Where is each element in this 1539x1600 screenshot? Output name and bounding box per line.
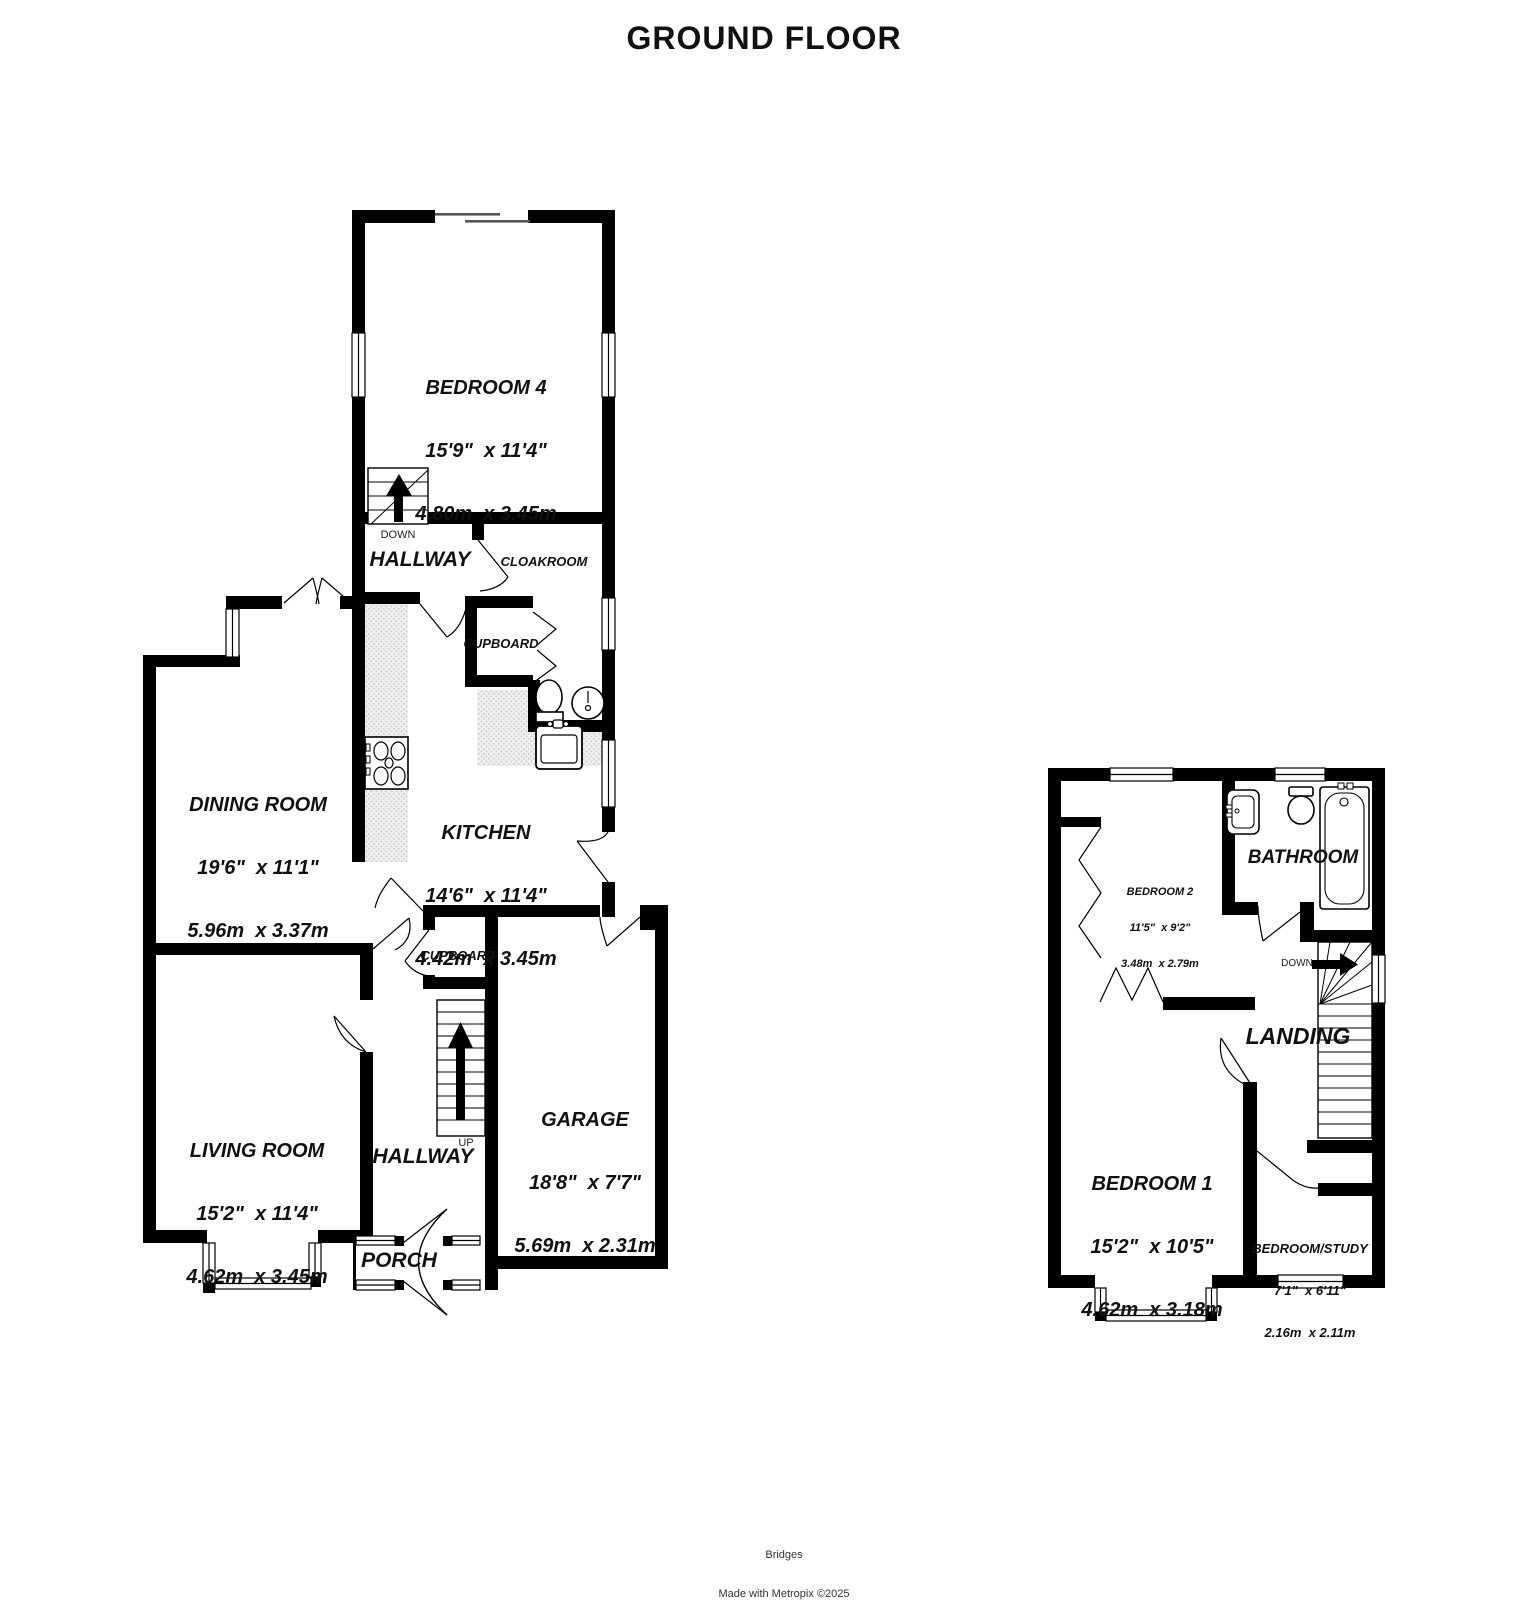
room-name: BEDROOM 2 (1121, 886, 1199, 898)
room-name: BEDROOM 4 (415, 378, 556, 399)
bath-icon (1320, 783, 1369, 909)
room-dims-metric: 4.80m x 3.45m (415, 504, 556, 525)
room-dims-metric: 4.62m x 3.45m (186, 1267, 327, 1288)
room-name: KITCHEN (415, 823, 556, 844)
bathroom-sink-icon (1226, 790, 1259, 834)
room-name: BEDROOM 1 (1081, 1174, 1222, 1195)
footer-brand: Bridges (718, 1549, 849, 1562)
stairs-down-first-label: DOWN (1281, 958, 1313, 969)
room-dims-imperial: 15'9" x 11'4" (415, 441, 556, 462)
room-label-cupboard-lower: CUPBOARD (420, 949, 495, 963)
room-label-landing: LANDING (1246, 1024, 1351, 1048)
room-label-living: LIVING ROOM 15'2" x 11'4" 4.62m x 3.45m (186, 1099, 327, 1330)
room-label-kitchen: KITCHEN 14'6" x 11'4" 4.42m x 3.45m (415, 781, 556, 1012)
bathroom-toilet-icon (1288, 787, 1314, 824)
sliding-door-icon (435, 213, 530, 223)
room-dims-metric: 3.48m x 2.79m (1121, 958, 1199, 970)
floorplan-canvas: GROUND FLOOR (0, 0, 1539, 1600)
room-label-bathroom: BATHROOM (1248, 848, 1358, 868)
room-dims-imperial: 19'6" x 11'1" (187, 858, 328, 879)
room-dims-imperial: 7'1" x 6'11" (1252, 1284, 1368, 1298)
room-name: LIVING ROOM (186, 1141, 327, 1162)
room-label-hallway-upper: HALLWAY (369, 549, 470, 571)
room-dims-imperial: 14'6" x 11'4" (415, 886, 556, 907)
room-dims-metric: 5.96m x 3.37m (187, 921, 328, 942)
room-label-dining: DINING ROOM 19'6" x 11'1" 5.96m x 3.37m (187, 753, 328, 984)
room-dims-metric: 4.62m x 3.18m (1081, 1300, 1222, 1321)
room-label-bedroom4: BEDROOM 4 15'9" x 11'4" 4.80m x 3.45m (415, 336, 556, 567)
room-label-bedroom2: BEDROOM 2 11'5" x 9'2" 3.48m x 2.79m (1121, 862, 1199, 994)
room-name: GARAGE (514, 1110, 655, 1131)
room-dims-imperial: 15'2" x 10'5" (1081, 1237, 1222, 1258)
room-dims-imperial: 11'5" x 9'2" (1121, 922, 1199, 934)
room-dims-metric: 5.69m x 2.31m (514, 1236, 655, 1257)
hob-icon (365, 737, 408, 789)
kitchen-sink-icon (536, 720, 582, 769)
room-name: DINING ROOM (187, 795, 328, 816)
room-label-hallway-lower: HALLWAY (372, 1146, 473, 1168)
toilet-icon (536, 680, 563, 722)
room-dims-imperial: 18'8" x 7'7" (514, 1173, 655, 1194)
room-label-cloakroom: CLOAKROOM (501, 555, 588, 569)
room-dims-metric: 2.16m x 2.11m (1252, 1326, 1368, 1340)
room-label-cupboard-upper: CUPBOARD (463, 637, 538, 651)
room-label-bedroom1: BEDROOM 1 15'2" x 10'5" 4.62m x 3.18m (1081, 1132, 1222, 1363)
room-label-porch: PORCH (361, 1250, 437, 1272)
stairs-up-icon (437, 1000, 485, 1136)
basin-icon (572, 687, 604, 719)
room-name: BEDROOM/STUDY (1252, 1242, 1368, 1256)
footer-made-with: Made with Metropix ©2025 (718, 1588, 849, 1600)
stairs-down-label: DOWN (381, 529, 416, 541)
footer-credit: Bridges Made with Metropix ©2025 (718, 1523, 849, 1600)
room-label-bedroom-study: BEDROOM/STUDY 7'1" x 6'11" 2.16m x 2.11m (1252, 1214, 1368, 1368)
room-dims-imperial: 15'2" x 11'4" (186, 1204, 327, 1225)
room-label-garage: GARAGE 18'8" x 7'7" 5.69m x 2.31m (514, 1068, 655, 1299)
